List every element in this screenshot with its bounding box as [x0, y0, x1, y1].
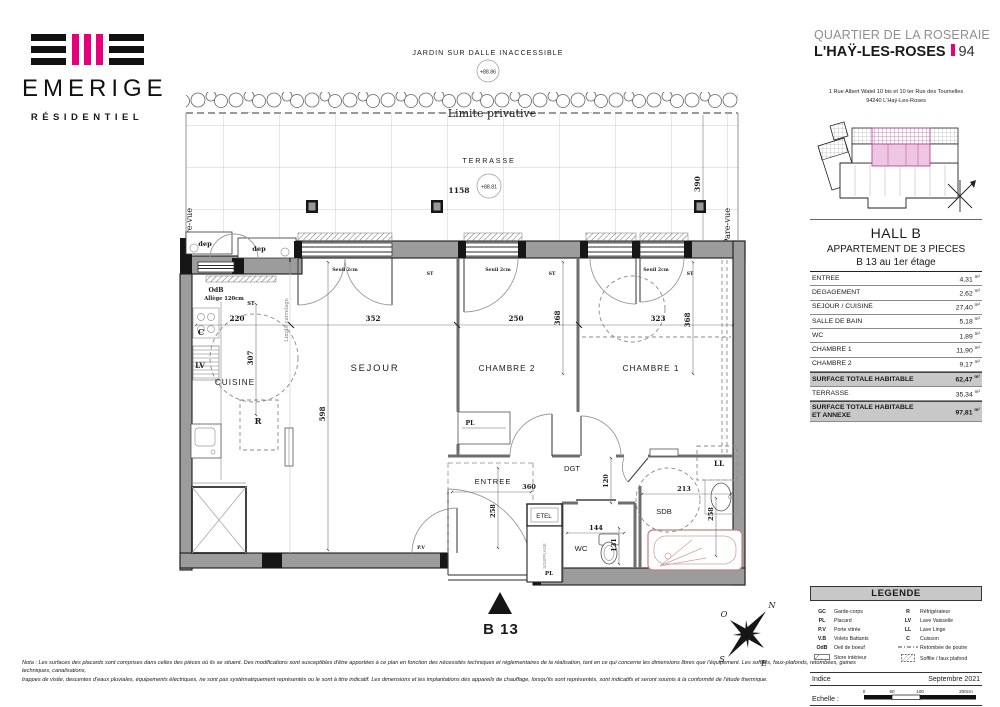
dim-cuisine-w: 220	[229, 314, 244, 323]
area-label: DEGAGEMENT	[812, 289, 924, 297]
unit-number: B 13	[483, 621, 519, 638]
legend-column-2: RRéfrigérateur LVLave Vaisselle LLLave L…	[896, 606, 982, 667]
note-line-1: Nota : Les surfaces des placards sont co…	[22, 659, 877, 676]
city-name: L'HAŸ-LES-ROSES	[814, 44, 946, 60]
dep-label-2: dep	[252, 245, 266, 253]
legend-item: OdBOeil de boeuf	[810, 645, 896, 651]
retombee-de-poutre-icon	[896, 645, 920, 651]
legend-item: Soffite / faux plafond	[896, 654, 982, 664]
area-label: WC	[812, 332, 924, 340]
brand-name: EMERIGE	[22, 75, 152, 103]
kitchen-fixtures	[191, 302, 298, 483]
legend-item: Retombée de poutre	[896, 645, 982, 651]
areas-table: ENTREE4,31 m² DEGAGEMENT2,62 m² SEJOUR /…	[810, 271, 982, 422]
soffite-icon	[896, 654, 920, 664]
sejour-fixtures	[285, 428, 293, 466]
foot-note: Nota : Les surfaces des placards sont co…	[22, 659, 877, 684]
scale-row: Echelle : 0 50 100 200cm	[810, 686, 982, 706]
legend-column-1: GCGarde-corps PLPlacard P.VPorte vitrée …	[810, 606, 896, 667]
dim-chambre1-d-right: 368	[683, 312, 692, 327]
city-title: L'HAŸ-LES-ROSES94	[814, 44, 975, 60]
dim-dgt-d: 120	[602, 474, 610, 488]
address-line-2: 94240 L'Haÿ-Les-Roses	[810, 97, 982, 106]
tag-lave-linge: LL	[714, 459, 724, 468]
limite-privative-label: Limite privative	[448, 107, 536, 120]
room-chambre1: CHAMBRE 1	[623, 364, 680, 373]
room-wc: WC	[575, 544, 588, 553]
dim-chambre2-w: 250	[508, 314, 523, 323]
legend-abbr: C	[896, 636, 920, 642]
dim-sdb-d: 258	[707, 507, 715, 521]
area-unit: m²	[975, 331, 980, 336]
room-chambre2: CHAMBRE 2	[479, 364, 536, 373]
area-value: 4,31	[960, 276, 973, 283]
legend-label: Volets Battants	[834, 636, 896, 642]
soufflage-label: SOUFFLAGE	[542, 543, 547, 569]
garden-level: +88.86	[480, 70, 496, 76]
table-row: SALLE DE BAIN5,18 m²	[810, 315, 982, 329]
st-label-0: ST	[247, 301, 255, 307]
table-row: WC1,89 m²	[810, 329, 982, 343]
unit-type: APPARTEMENT DE 3 PIECES	[810, 244, 982, 255]
note-line-2: trappes de visite, descentes d'eaux pluv…	[22, 676, 877, 684]
allege-label: Allège 120cm	[203, 295, 244, 302]
area-value: 2,62	[960, 290, 973, 297]
seuil-label-2: Seuil 2cm	[485, 267, 511, 273]
legend-item: V.BVolets Battants	[810, 636, 896, 642]
window-chambre1-a	[586, 233, 636, 304]
area-value: 9,17	[960, 361, 973, 368]
area-label: CHAMBRE 1	[812, 346, 924, 354]
site-unit-highlight	[872, 128, 930, 166]
area-unit: m²	[974, 407, 980, 412]
tag-refrigerateur: R	[255, 416, 262, 426]
scale-bar: 0 50 100 200cm	[860, 688, 980, 703]
legend-label: Soffite / faux plafond	[920, 656, 982, 662]
area-value: 35,34	[956, 391, 973, 398]
scale-tick: 200cm	[959, 689, 973, 694]
unit-floor: B 13 au 1er étage	[810, 257, 982, 268]
legend-abbr: LL	[896, 627, 920, 633]
st-label-2: ST	[549, 271, 556, 277]
area-unit: m²	[974, 374, 980, 379]
legend-item: P.VPorte vitrée	[810, 627, 896, 633]
table-row: CHAMBRE 111,90 m²	[810, 343, 982, 357]
tag-cuisson: C	[198, 327, 205, 337]
entrance-arrow	[488, 592, 512, 614]
tag-placard-dgt: PL	[545, 571, 553, 577]
brand-logo-mark	[22, 30, 152, 68]
legend-item: LVLave Vaisselle	[896, 618, 982, 624]
tag-porte-vitree: P.V	[417, 545, 425, 551]
unit-title-block: HALL B APPARTEMENT DE 3 PIECES B 13 au 1…	[810, 225, 982, 268]
project-title: QUARTIER DE LA ROSERAIE	[814, 28, 982, 42]
scale-tick: 0	[863, 689, 866, 694]
plan-sheet: JARDIN SUR DALLE INACCESSIBLE +88.86 Lim…	[0, 0, 1000, 707]
legend-abbr: LV	[896, 618, 920, 624]
legend-label: Retombée de poutre	[920, 645, 982, 651]
table-row: SEJOUR / CUISINE27,40 m²	[810, 301, 982, 315]
st-label-1: ST	[427, 271, 434, 277]
dim-chambre1-w: 323	[650, 314, 665, 323]
area-unit: m²	[975, 359, 980, 364]
legend-abbr: GC	[810, 609, 834, 615]
table-row-total: SURFACE TOTALE HABITABLE ET ANNEXE97,81 …	[810, 401, 982, 422]
dim-sejour-d: 598	[318, 406, 327, 421]
area-value: 11,90	[956, 347, 973, 354]
area-value: 62,47	[955, 377, 972, 384]
dim-entree-d: 258	[489, 504, 497, 518]
legend-label: Cuisson	[920, 636, 982, 642]
legend-label: Placard	[834, 618, 896, 624]
table-row: DEGAGEMENT2,62 m²	[810, 286, 982, 300]
legend-abbr: V.B	[810, 636, 834, 642]
table-row-total: SURFACE TOTALE HABITABLE62,47 m²	[810, 372, 982, 387]
dim-entree-w: 360	[522, 483, 536, 491]
compass-west: O	[721, 609, 728, 619]
seuil-label-3: Seuil 2cm	[643, 267, 669, 273]
hall-title: HALL B	[810, 225, 982, 241]
area-label: SURFACE TOTALE HABITABLE ET ANNEXE	[812, 404, 924, 420]
seuil-label-1: Seuil 2cm	[332, 267, 358, 273]
legend-abbr: OdB	[810, 645, 834, 651]
tag-lave-vaisselle: LV	[195, 361, 205, 370]
area-unit: m²	[975, 302, 980, 307]
compass-north: N	[767, 600, 776, 610]
area-unit: m²	[975, 288, 980, 293]
legend-item: LLLave Linge	[896, 627, 982, 633]
scale-tick: 50	[889, 689, 895, 694]
area-unit: m²	[975, 274, 980, 279]
legend-label: Garde-corps	[834, 609, 896, 615]
room-entree: ENTREE	[475, 477, 512, 486]
area-value: 5,18	[960, 319, 973, 326]
indice-value: Septembre 2021	[928, 676, 980, 683]
limite-carrelage-label: Limite carrelage	[284, 298, 290, 342]
panel-divider	[810, 219, 982, 220]
area-value: 27,40	[956, 304, 973, 311]
legend-item: CCuisson	[896, 636, 982, 642]
room-dgt: DGT	[564, 464, 580, 473]
pare-vue-right: Pare-vue	[722, 208, 732, 244]
odb-label: OdB	[209, 287, 224, 294]
chambre1-fixtures	[582, 260, 731, 456]
address-block: 1 Rue Albert Watel 10 bis et 10 ter Rue …	[810, 88, 982, 106]
legend-label: Lave Vaisselle	[920, 618, 982, 624]
logo-bars-icon	[72, 34, 103, 65]
area-label: SALLE DE BAIN	[812, 318, 924, 326]
separator-bar	[951, 44, 955, 56]
brand-tagline: RÉSIDENTIEL	[22, 112, 152, 123]
dim-terrace-width: 1158	[448, 186, 469, 195]
legend-item: RRéfrigérateur	[896, 609, 982, 615]
scale-tick: 100	[916, 689, 924, 694]
logo-e-right-icon	[109, 34, 144, 65]
logo-e-left-icon	[31, 34, 66, 65]
room-sdb: SDB	[656, 507, 672, 516]
legend-label: Réfrigérateur	[920, 609, 982, 615]
area-unit: m²	[975, 316, 980, 321]
legend-label: Porte vitrée	[834, 627, 896, 633]
room-cuisine: CUISINE	[215, 378, 255, 387]
dim-sdb-w: 213	[677, 485, 691, 493]
area-value: 1,89	[960, 333, 973, 340]
legend-title: LEGENDE	[810, 586, 982, 601]
legend-item: PLPlacard	[810, 618, 896, 624]
scale-label: Echelle :	[812, 696, 839, 703]
dim-sejour-w: 352	[365, 314, 380, 323]
dep-label-1: dep	[198, 240, 212, 248]
terrace-label: TERRASSE	[462, 156, 515, 165]
legend-label: Lave Linge	[920, 627, 982, 633]
area-label: SURFACE TOTALE HABITABLE	[812, 376, 924, 384]
site-key-plan	[810, 108, 982, 218]
compass-rose: O N S E	[719, 600, 776, 668]
legend-label: Oeil de boeuf	[834, 645, 896, 651]
dim-wc-w: 144	[589, 524, 603, 532]
table-row: ENTREE4,31 m²	[810, 272, 982, 286]
area-unit: m²	[975, 389, 980, 394]
terrace-tiles	[186, 113, 738, 240]
terrace-level: +88.81	[481, 185, 497, 191]
garden-label: JARDIN SUR DALLE INACCESSIBLE	[412, 48, 563, 57]
table-row: CHAMBRE 29,17 m²	[810, 358, 982, 372]
legend-abbr: PL	[810, 618, 834, 624]
brand-logo: EMERIGE RÉSIDENTIEL	[22, 30, 152, 123]
legend-item: GCGarde-corps	[810, 609, 896, 615]
room-etel: ETEL	[536, 513, 552, 520]
dim-cuisine-d: 307	[246, 350, 255, 365]
dim-terrace-side: 390	[693, 176, 702, 192]
tag-placard-ch2: PL	[465, 420, 475, 427]
room-sejour: SEJOUR	[351, 362, 400, 373]
area-label: ENTREE	[812, 275, 924, 283]
legend: LEGENDE GCGarde-corps PLPlacard P.VPorte…	[810, 586, 982, 706]
legend-abbr: R	[896, 609, 920, 615]
area-label: SEJOUR / CUISINE	[812, 303, 924, 311]
department-number: 94	[959, 44, 975, 60]
table-row: TERRASSE35,34 m²	[810, 387, 982, 401]
area-label: TERRASSE	[812, 390, 924, 398]
address-line-1: 1 Rue Albert Watel 10 bis et 10 ter Rue …	[810, 88, 982, 97]
area-value: 97,81	[955, 409, 972, 416]
area-label: CHAMBRE 2	[812, 360, 924, 368]
dim-wc-d: 131	[610, 538, 618, 552]
dim-chambre1-d-left: 368	[553, 310, 562, 325]
legend-abbr: P.V	[810, 627, 834, 633]
sdb-fixtures	[636, 446, 742, 570]
area-unit: m²	[975, 345, 980, 350]
